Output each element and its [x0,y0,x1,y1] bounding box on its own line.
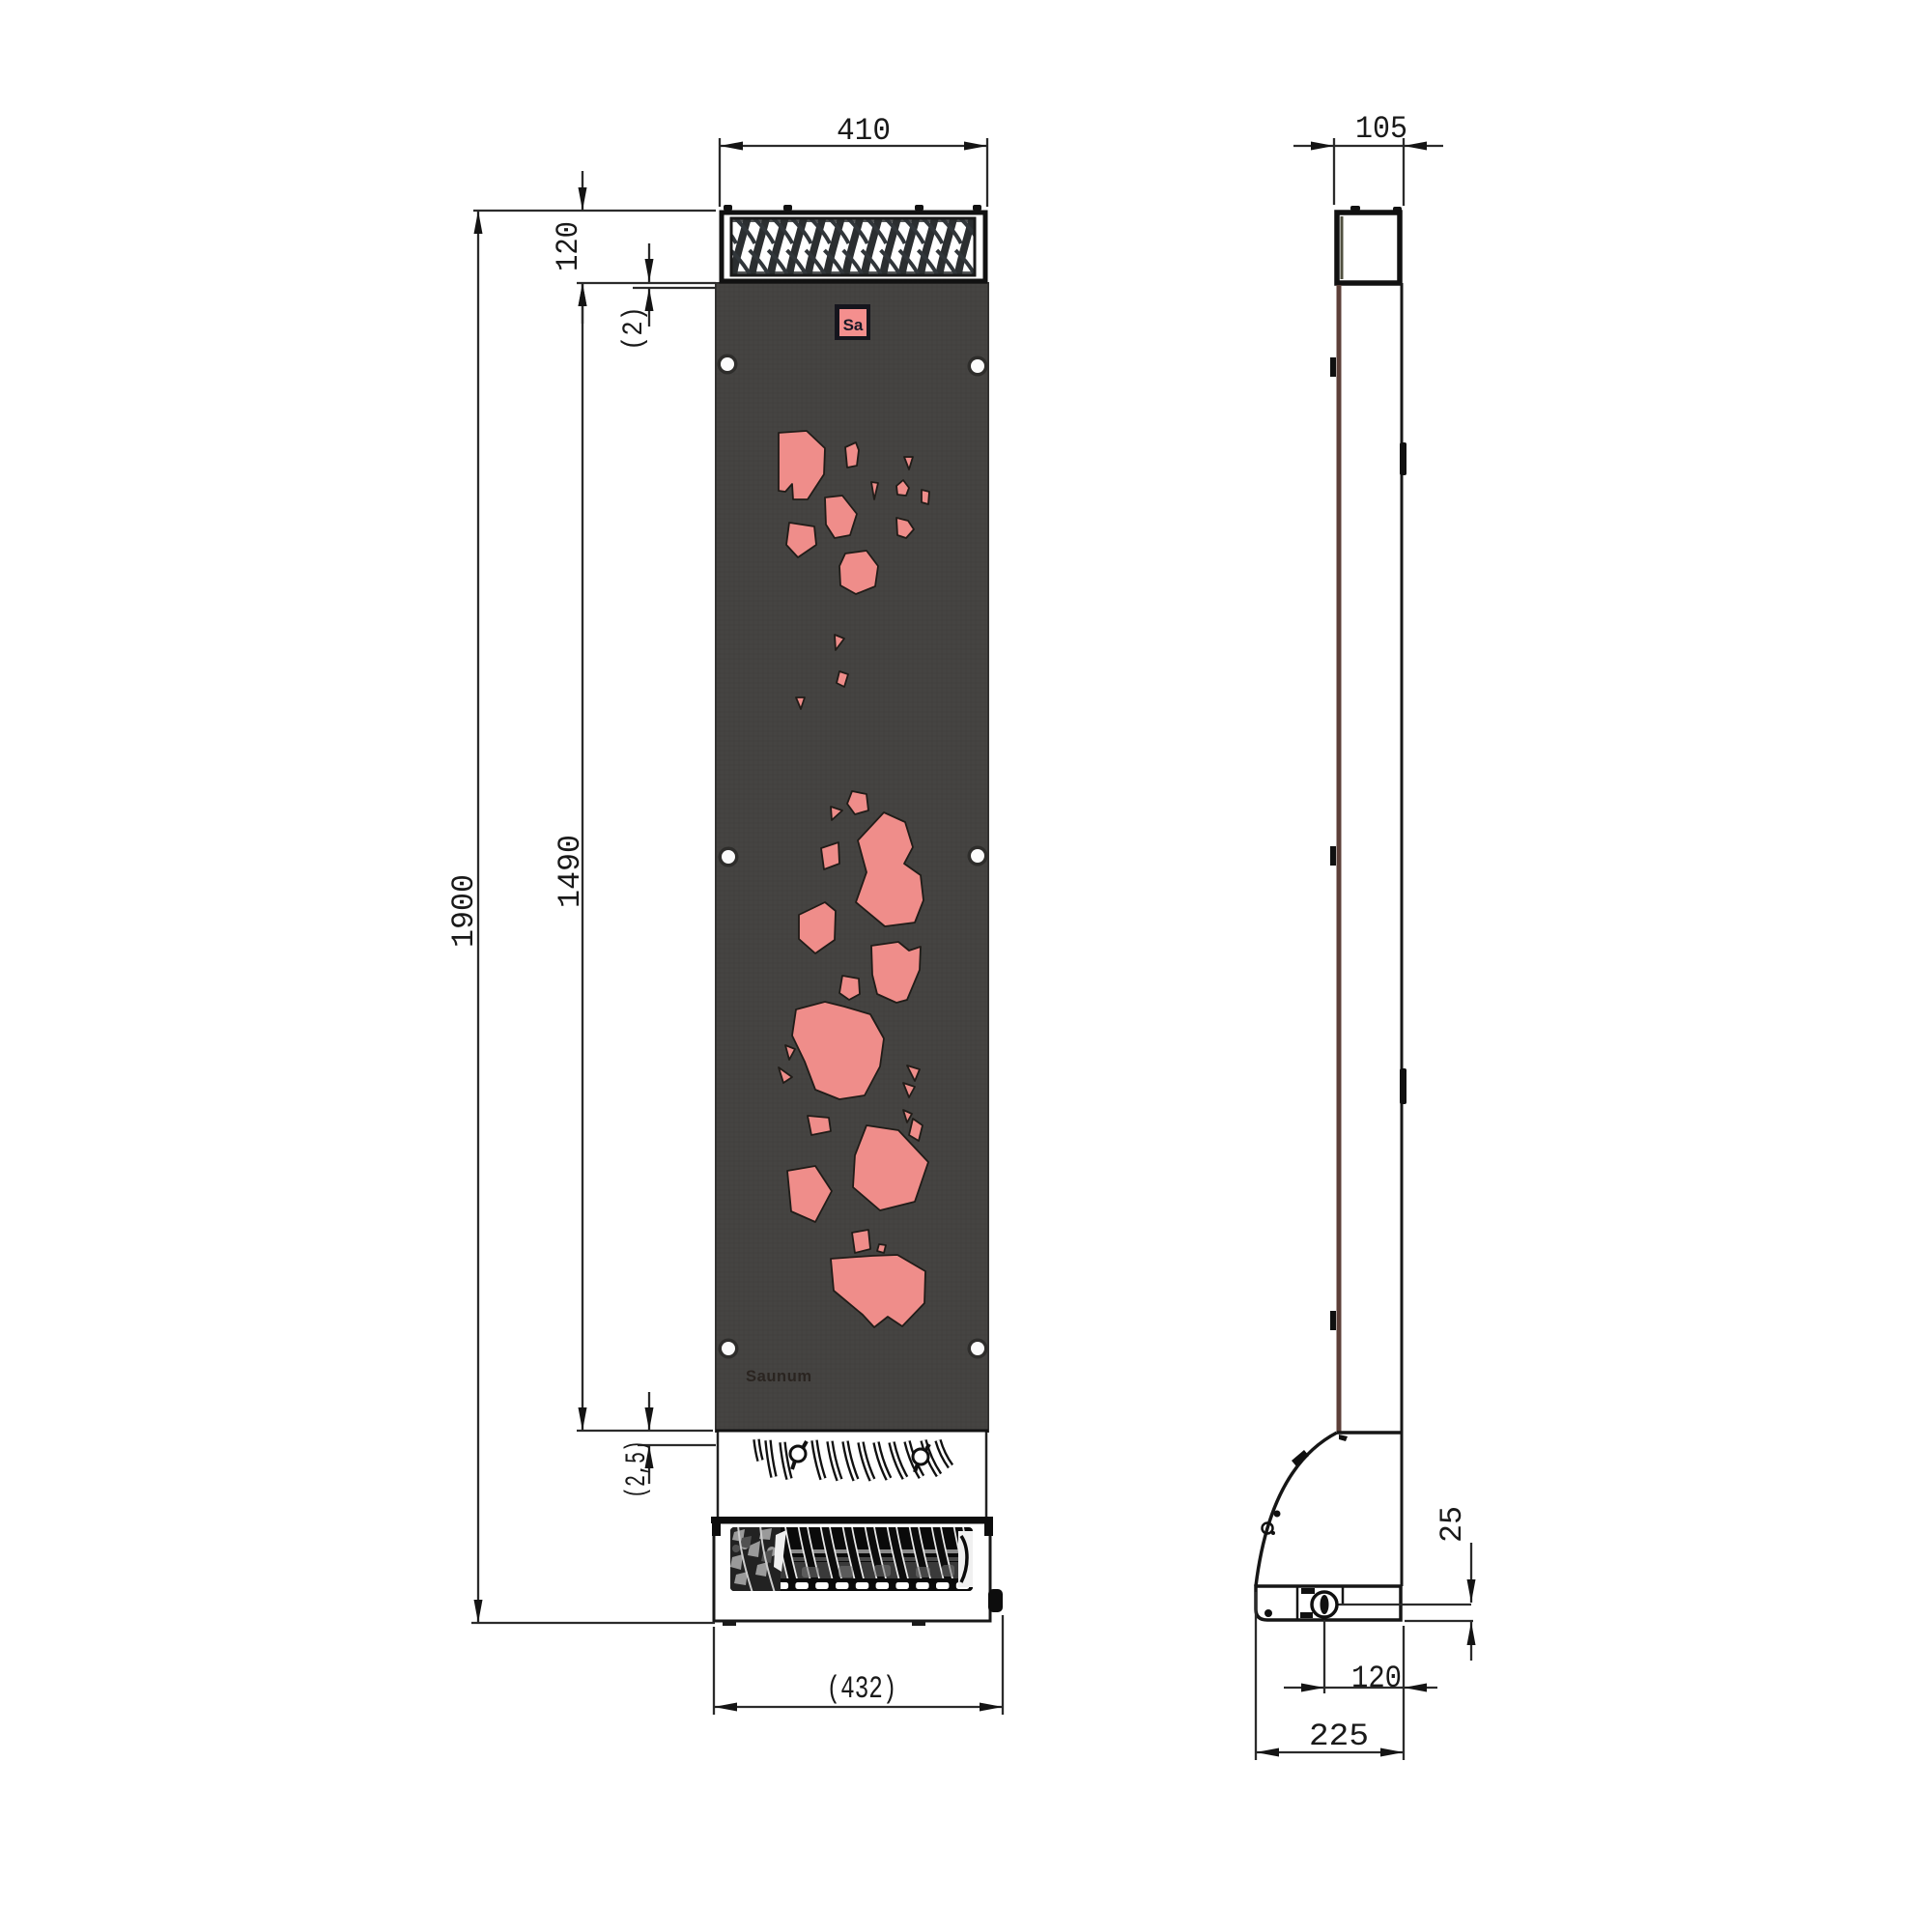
svg-text:120: 120 [1351,1661,1402,1696]
svg-text:410: 410 [837,113,891,149]
svg-text:Sa: Sa [843,316,864,334]
svg-text:(2): (2) [618,306,651,351]
svg-text:1490: 1490 [553,835,588,908]
svg-text:1900: 1900 [446,874,482,948]
svg-text:25: 25 [1435,1506,1470,1543]
svg-text:(432): (432) [827,1671,897,1707]
svg-text:225: 225 [1309,1719,1369,1754]
svg-text:105: 105 [1355,111,1407,147]
svg-text:Saunum: Saunum [746,1368,812,1385]
svg-text:120: 120 [551,221,586,271]
svg-text:(2,5): (2,5) [621,1440,654,1498]
